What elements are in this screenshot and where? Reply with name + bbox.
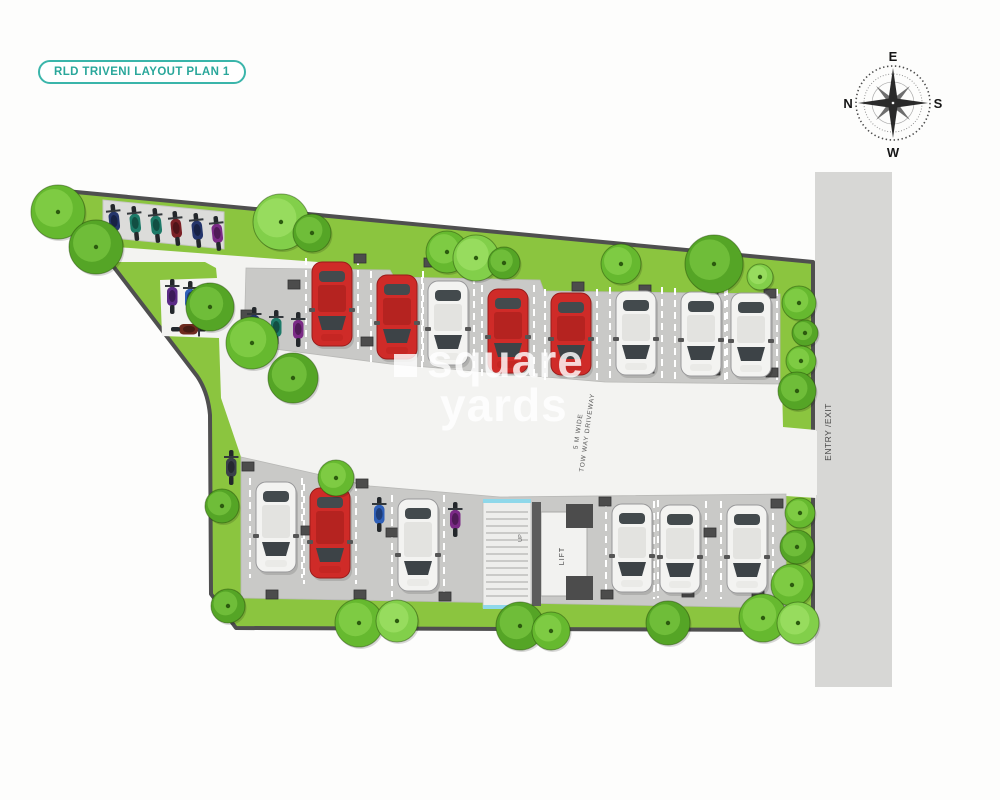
column (288, 280, 300, 289)
stair-top-strip (483, 499, 531, 503)
layout-plan-page: RLD TRIVENI LAYOUT PLAN 1 E S W N (0, 0, 1000, 800)
column (704, 528, 716, 537)
column (439, 592, 451, 601)
svg-text:ENTRY /EXIT: ENTRY /EXIT (823, 403, 833, 461)
lift-wall-top-right (566, 504, 593, 528)
car-white (253, 482, 299, 575)
lift-wall-bottom-right (566, 576, 593, 600)
tree (646, 601, 692, 647)
column (242, 462, 254, 471)
car-white (609, 504, 655, 595)
driveway-opening (807, 431, 817, 495)
lift-label: LIFT (559, 547, 566, 565)
tree (69, 220, 125, 276)
column (361, 337, 373, 346)
car-white (657, 505, 703, 596)
column (601, 590, 613, 599)
column (354, 590, 366, 599)
column (356, 479, 368, 488)
staircase (483, 502, 531, 608)
column (599, 497, 611, 506)
car-white (425, 281, 471, 368)
lift-wall-left (532, 502, 541, 606)
column (572, 282, 584, 291)
car-red (548, 293, 594, 378)
car-white (724, 505, 770, 596)
car-red (307, 488, 353, 581)
column (266, 590, 278, 599)
column (386, 528, 398, 537)
stair-lift-block: LIFT UP (483, 499, 593, 609)
up-label: UP (518, 534, 524, 542)
column (354, 254, 366, 263)
car-white (728, 293, 774, 380)
entry-exit-label: ENTRY /EXIT (823, 403, 833, 461)
site-plan: LIFT UP 5 M WIDE TOW WAY DRIVEWAY ENTRY … (0, 0, 1000, 800)
car-white (395, 499, 441, 594)
car-red (309, 262, 355, 349)
car-white (678, 292, 724, 379)
car-red (485, 289, 531, 376)
car-red (374, 275, 420, 362)
column (771, 499, 783, 508)
car-white (613, 291, 659, 378)
